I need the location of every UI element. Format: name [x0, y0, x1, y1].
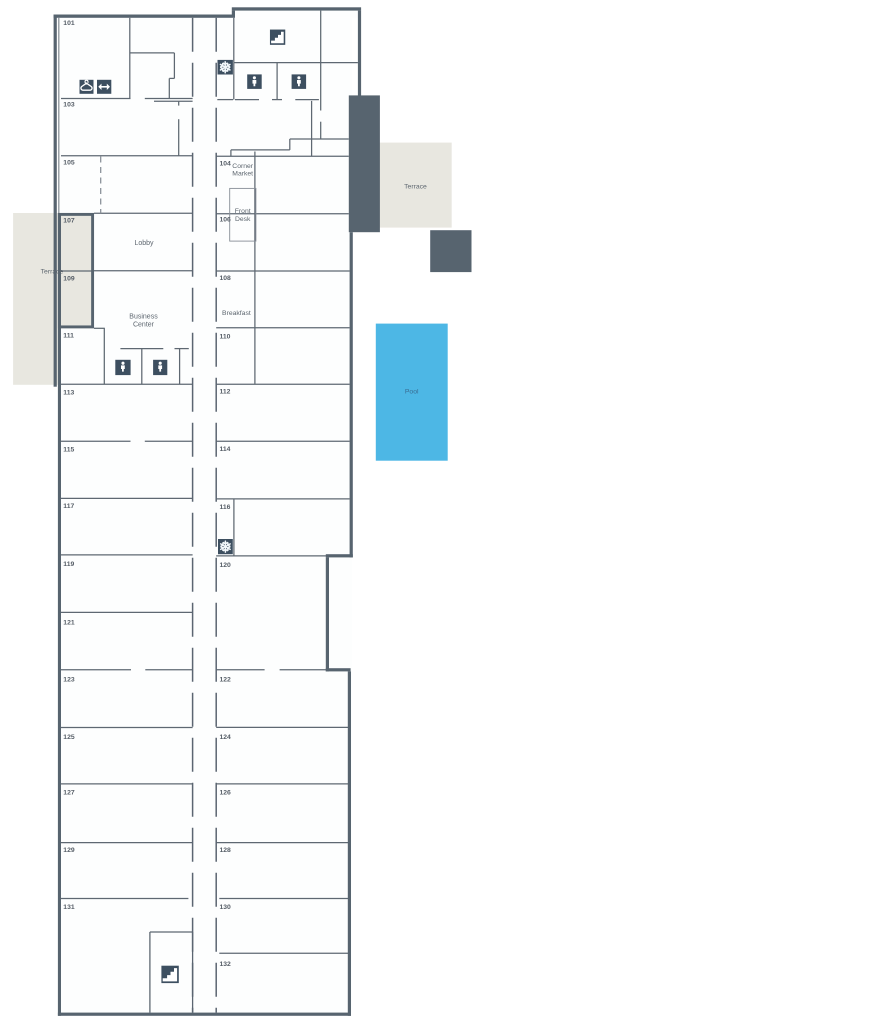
svg-text:124: 124	[220, 734, 232, 741]
svg-text:Business: Business	[129, 313, 158, 320]
svg-text:110: 110	[220, 334, 231, 341]
svg-text:103: 103	[63, 101, 75, 108]
svg-text:Front: Front	[235, 208, 251, 215]
svg-text:132: 132	[220, 961, 232, 968]
svg-text:128: 128	[220, 847, 232, 854]
svg-text:108: 108	[220, 275, 232, 282]
svg-text:115: 115	[63, 446, 74, 453]
svg-text:119: 119	[63, 561, 74, 568]
svg-text:116: 116	[220, 504, 231, 511]
svg-text:Breakfast: Breakfast	[222, 310, 251, 317]
svg-text:123: 123	[63, 676, 75, 683]
svg-text:Center: Center	[133, 321, 155, 328]
svg-text:101: 101	[63, 20, 75, 27]
svg-text:126: 126	[220, 790, 232, 797]
svg-text:130: 130	[220, 904, 232, 911]
svg-text:131: 131	[63, 904, 75, 911]
svg-text:Terrace: Terrace	[41, 269, 64, 276]
svg-text:Market: Market	[232, 171, 253, 178]
svg-text:107: 107	[63, 218, 75, 225]
svg-text:106: 106	[220, 217, 232, 224]
svg-text:125: 125	[63, 734, 75, 741]
svg-text:Lobby: Lobby	[134, 240, 154, 247]
svg-text:127: 127	[63, 790, 75, 797]
svg-text:117: 117	[63, 503, 74, 510]
svg-text:120: 120	[220, 562, 232, 569]
svg-text:114: 114	[220, 446, 231, 453]
svg-text:112: 112	[220, 388, 231, 395]
svg-text:111: 111	[63, 333, 74, 340]
svg-text:Corner: Corner	[232, 163, 254, 170]
svg-text:122: 122	[220, 676, 232, 683]
svg-text:113: 113	[63, 389, 74, 396]
svg-text:129: 129	[63, 847, 75, 854]
svg-text:Desk: Desk	[235, 216, 251, 223]
svg-text:121: 121	[63, 619, 75, 626]
svg-text:109: 109	[63, 276, 75, 283]
svg-text:Pool: Pool	[405, 389, 419, 396]
svg-text:104: 104	[220, 161, 232, 168]
svg-text:Terrace: Terrace	[404, 183, 427, 190]
svg-text:105: 105	[63, 159, 75, 166]
